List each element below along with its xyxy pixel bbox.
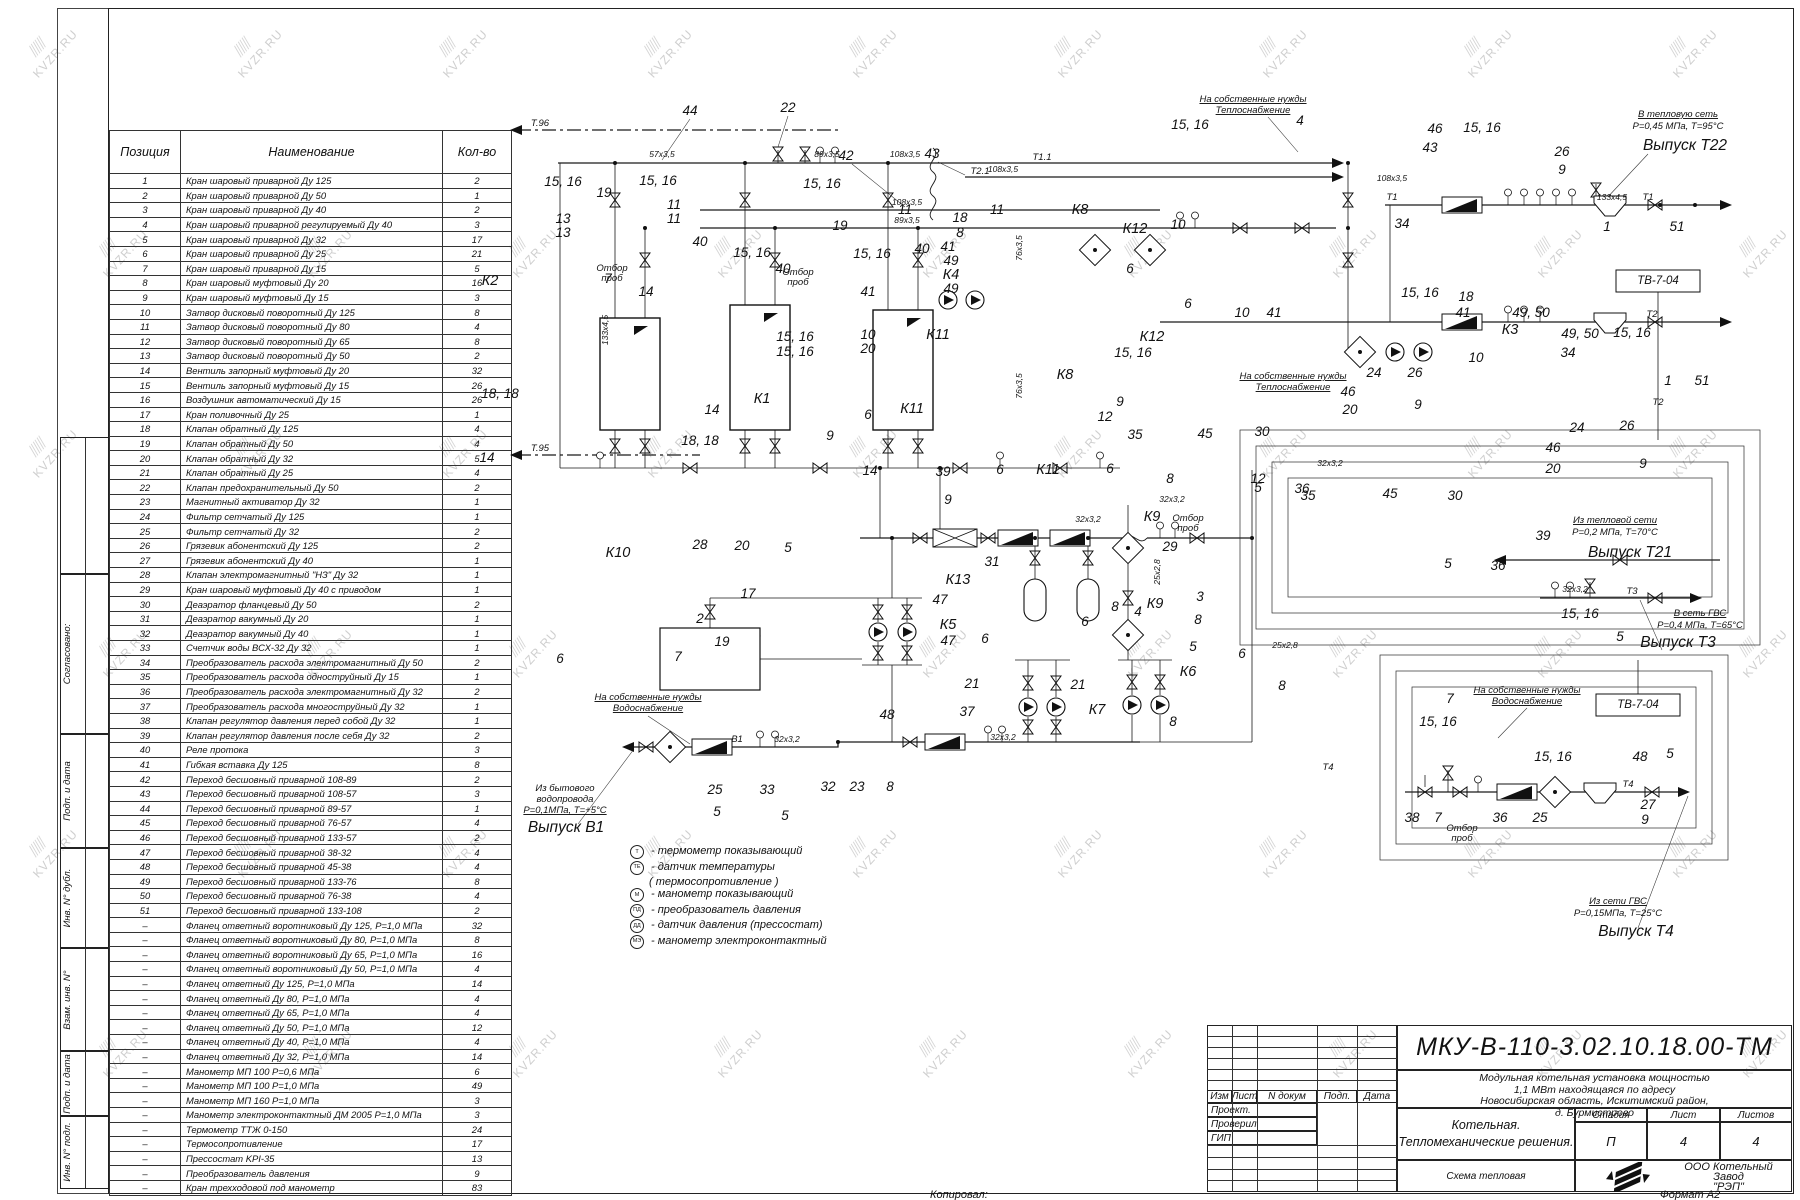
- sheet-value: 4: [1647, 1122, 1720, 1160]
- diagram-label: 6: [996, 462, 1004, 477]
- doc-number: МКУ-В-110-3.02.10.18.00-ТМ: [1397, 1025, 1792, 1070]
- diagram-label: К1: [754, 391, 771, 407]
- diagram-label: В1: [731, 734, 743, 745]
- diagram-label: 14: [704, 402, 719, 417]
- diagram-label: 15, 16: [733, 245, 771, 260]
- diagram-label: Теплоснабжение: [1256, 382, 1331, 393]
- stage-value: П: [1575, 1122, 1647, 1160]
- diagram-label: 15, 16: [639, 173, 677, 188]
- diagram-label: 2: [695, 611, 704, 626]
- diagram-label: 14: [479, 450, 494, 465]
- diagram-label: В тепловую сеть: [1638, 109, 1718, 120]
- piping-schematic: 4422424315, 161915, 16131311114071415, 1…: [0, 0, 1800, 1200]
- sheets-value: 4: [1720, 1122, 1792, 1160]
- diagram-label: 32х3,2: [774, 734, 800, 744]
- drawing-sheet: ⫽⫽⫽KVZR.RU⫽⫽⫽KVZR.RU⫽⫽⫽KVZR.RU⫽⫽⫽KVZR.RU…: [0, 0, 1800, 1200]
- diagram-label: 14: [862, 463, 877, 478]
- diagram-label: 9: [1558, 162, 1566, 177]
- diagram-label: 36: [1492, 810, 1508, 825]
- diagram-label: Выпуск Т22: [1643, 137, 1727, 154]
- diagram-label: 15, 16: [1419, 714, 1457, 729]
- diagram-label: 25х2,8: [1152, 559, 1162, 586]
- diagram-label: 24: [1365, 365, 1381, 380]
- rev-grid-line: [1257, 1025, 1258, 1192]
- diagram-label: 49: [943, 253, 959, 268]
- diagram-label: Водоснабжение: [1492, 696, 1562, 707]
- diagram-label: 18: [952, 210, 968, 225]
- diagram-label: К3: [1502, 322, 1519, 338]
- diagram-label: 11: [990, 202, 1004, 217]
- rev-grid-line: [1232, 1025, 1233, 1192]
- diagram-label: К6: [1180, 664, 1198, 680]
- object-line: Тепломеханические решения.: [1398, 1134, 1574, 1151]
- diagram-label: 13: [555, 225, 571, 240]
- diagram-label: 15, 16: [803, 176, 841, 191]
- diagram-label: 26: [1553, 144, 1570, 159]
- rev-col-izm: Изм: [1207, 1090, 1232, 1103]
- rev-grid-line: [1207, 1145, 1397, 1146]
- diagram-label: 1: [1603, 219, 1611, 234]
- diagram-label: 20: [1544, 461, 1561, 476]
- diagram-label: проб: [787, 277, 809, 288]
- diagram-label: 49, 50: [1561, 326, 1599, 341]
- diagram-label: Т3: [1626, 586, 1638, 597]
- diagram-label: 6: [1238, 646, 1246, 661]
- diagram-label: 108х3,5: [890, 149, 921, 159]
- diagram-label: На собственные нужды: [1473, 685, 1580, 696]
- diagram-label: 8: [886, 779, 894, 794]
- object-line: Котельная.: [1398, 1117, 1574, 1134]
- diagram-label: 76х3,5: [1014, 373, 1024, 399]
- diagram-label: 6: [1126, 261, 1134, 276]
- description-line: Новосибирская область, Искитимский район…: [1398, 1096, 1791, 1108]
- diagram-label: 41: [1455, 305, 1470, 320]
- diagram-label: 9: [1116, 394, 1124, 409]
- diagram-label: В сеть ГВС: [1674, 608, 1727, 619]
- diagram-label: 23: [848, 779, 865, 794]
- diagram-label: 5: [1444, 556, 1452, 571]
- diagram-label: 5: [1666, 746, 1674, 761]
- diagram-label: ТВ-7-04: [1617, 699, 1659, 711]
- diagram-label: 5: [713, 804, 721, 819]
- diagram-label: К9: [1144, 509, 1161, 525]
- diagram-label: 29: [1161, 539, 1178, 554]
- diagram-label: 89х3,5: [814, 149, 840, 159]
- diagram-label: 4: [1134, 604, 1142, 619]
- diagram-label: 30: [1447, 488, 1463, 503]
- diagram-label: 41: [940, 239, 955, 254]
- diagram-label: 19: [714, 634, 730, 649]
- diagram-label: 11: [667, 197, 681, 212]
- stage-header: Стадия: [1575, 1108, 1647, 1122]
- diagram-label: К10: [606, 545, 631, 561]
- diagram-label: 33: [759, 782, 775, 797]
- diagram-label: К9: [1147, 596, 1164, 612]
- diagram-label: 6: [864, 407, 872, 422]
- diagram-label: 45: [1197, 426, 1213, 441]
- diagram-label: 108х3,5: [988, 164, 1019, 174]
- diagram-label: Теплоснабжение: [1216, 105, 1291, 116]
- diagram-label: 10: [1468, 350, 1484, 365]
- description-line: Модульная котельная установка мощностью: [1398, 1073, 1791, 1085]
- diagram-label: К11: [1036, 462, 1060, 478]
- diagram-label: 8: [1194, 612, 1202, 627]
- rev-grid-line: [1207, 1180, 1397, 1181]
- role-row: Проект.: [1207, 1103, 1317, 1117]
- diagram-label: 9: [944, 492, 952, 507]
- diagram-label: 30: [1254, 424, 1270, 439]
- diagram-label: 48: [1632, 749, 1648, 764]
- diagram-label: 32х3,2: [1562, 584, 1588, 594]
- diagram-label: 19: [832, 218, 848, 233]
- diagram-label: 47: [932, 592, 948, 607]
- diagram-label: 15, 16: [1561, 606, 1599, 621]
- diagram-label: 32х3,2: [1317, 458, 1343, 468]
- role-row: ГИП: [1207, 1131, 1317, 1145]
- diagram-label: 9: [1641, 812, 1649, 827]
- diagram-label: 10: [860, 327, 876, 342]
- rev-grid-line: [1207, 1169, 1397, 1170]
- boiler-icons: [600, 305, 933, 430]
- diagram-label: 17: [740, 586, 756, 601]
- object-name: Котельная. Тепломеханические решения.: [1397, 1108, 1575, 1160]
- diagram-label: 36: [1490, 558, 1506, 573]
- diagram-label: Т4: [1322, 762, 1333, 773]
- diagram-label: Т1: [1386, 192, 1397, 203]
- diagram-label: 26: [1406, 365, 1423, 380]
- diagram-label: 15, 16: [1613, 325, 1651, 340]
- diagram-label: 8: [1278, 678, 1286, 693]
- diagram-label: 46: [1545, 440, 1561, 455]
- diagram-label: 1: [1664, 373, 1672, 388]
- diagram-label: 57х3,5: [649, 149, 675, 159]
- diagram-label: 32х3,2: [990, 732, 1016, 742]
- copied-by-label: Копировал:: [930, 1189, 988, 1200]
- org-cell: ООО Котельный Завод "РЭП": [1575, 1160, 1792, 1192]
- diagram-label: 15, 16: [776, 329, 814, 344]
- diagram-label: 5: [784, 540, 792, 555]
- diagram-label: На собственные нужды: [1239, 371, 1346, 382]
- rev-grid-line: [1207, 1047, 1397, 1048]
- diagram-label: К2: [482, 273, 499, 289]
- diagram-label: 108х3,5: [892, 197, 923, 207]
- diagram-label: 35: [1300, 488, 1316, 503]
- rev-col-list: Лист: [1232, 1090, 1257, 1103]
- rev-col-date: Дата: [1357, 1090, 1397, 1103]
- diagram-label: 32х3,2: [1159, 494, 1185, 504]
- rev-grid-line: [1207, 1080, 1397, 1081]
- diagram-label: 25: [706, 782, 723, 797]
- diagram-label: 89х3,5: [894, 215, 920, 225]
- diagram-label: 9: [826, 428, 834, 443]
- rep-logo: [1606, 1162, 1650, 1192]
- diagram-label: 32: [820, 779, 836, 794]
- diagram-label: 35: [1127, 427, 1143, 442]
- diagram-label: 15, 16: [853, 246, 891, 261]
- rev-grid-line: [1207, 1036, 1397, 1037]
- diagram-label: 28: [691, 537, 708, 552]
- diagram-label: К12: [1140, 329, 1165, 345]
- diagram-label: 32х3,2: [1075, 514, 1101, 524]
- diagram-label: Р=0,1МПа, Т=+5°С: [523, 805, 606, 816]
- diagram-label: 51: [1669, 219, 1684, 234]
- sheet-header: Лист: [1647, 1108, 1720, 1122]
- diagram-label: Т4: [1622, 779, 1633, 790]
- diagram-label: 48: [879, 707, 895, 722]
- diagram-label: 15, 16: [1114, 345, 1152, 360]
- diagram-label: На собственные нужды: [594, 692, 701, 703]
- diagram-label: Р=0,15МПа, Т=25°С: [1574, 908, 1662, 919]
- diagram-label: 7: [1434, 810, 1442, 825]
- diagram-label: 15, 16: [776, 344, 814, 359]
- diagram-label: К11: [926, 327, 950, 343]
- diagram-label: 43: [1422, 140, 1438, 155]
- diagram-label: 19: [596, 185, 612, 200]
- format-label: Формат А2: [1660, 1189, 1720, 1200]
- diagram-label: проб: [1177, 523, 1199, 534]
- diagram-label: 25х2,8: [1271, 640, 1298, 650]
- diagram-label: 8: [1111, 599, 1119, 614]
- diagram-label: 6: [1081, 614, 1089, 629]
- diagram-label: Р=0,4 МПа, Т=65°С: [1657, 620, 1743, 631]
- diagram-label: проб: [1451, 833, 1473, 844]
- diagram-label: На собственные нужды: [1199, 94, 1306, 105]
- diagram-label: 43: [924, 146, 940, 161]
- diagram-label: Т2: [1652, 397, 1664, 408]
- diagram-label: водопровода: [537, 794, 594, 805]
- diagram-label: 15, 16: [1534, 749, 1572, 764]
- diagram-label: Водоснабжение: [613, 703, 683, 714]
- diagram-label: 18: [1458, 289, 1474, 304]
- diagram-label: К12: [1123, 221, 1148, 237]
- diagram-label: 49: [943, 281, 959, 296]
- sheets-header: Листов: [1720, 1108, 1792, 1122]
- diagram-label: 108х3,5: [1377, 173, 1408, 183]
- diagram-label: Из сети ГВС: [1589, 896, 1647, 907]
- diagram-label: Т.96: [531, 118, 550, 129]
- diagram-label: 4: [1296, 113, 1304, 128]
- diagram-label: 11: [667, 211, 681, 226]
- diagram-label: Выпуск Т21: [1588, 544, 1672, 561]
- rev-grid-line: [1357, 1025, 1358, 1192]
- diagram-label: 8: [1169, 714, 1177, 729]
- diagram-label: 21: [1069, 677, 1085, 692]
- diagram-label: проб: [601, 273, 623, 284]
- diagram-label: 31: [984, 554, 999, 569]
- diagram-label: 6: [981, 631, 989, 646]
- leader-lines: [578, 116, 1688, 928]
- diagram-label: Т1: [1642, 192, 1653, 203]
- diagram-label: 34: [1560, 345, 1575, 360]
- diagram-label: 10: [1234, 305, 1250, 320]
- diagram-labels: 4422424315, 161915, 16131311114071415, 1…: [479, 94, 1742, 940]
- rev-grid-line: [1317, 1025, 1318, 1192]
- diagram-label: 9: [1639, 456, 1647, 471]
- diagram-label: 6: [556, 651, 564, 666]
- diagram-label: 15, 16: [544, 174, 582, 189]
- diagram-label: Т1.1: [1032, 152, 1051, 163]
- diagram-label: 15, 16: [1171, 117, 1209, 132]
- diagram-label: 12: [1097, 409, 1113, 424]
- diagram-label: 18, 18: [481, 386, 519, 401]
- diagram-label: 39: [935, 464, 951, 479]
- diagram-label: 15, 16: [1401, 285, 1439, 300]
- diagram-label: 20: [1341, 402, 1358, 417]
- diagram-label: 13: [555, 211, 571, 226]
- diagram-label: Р=0,45 МПа, Т=95°С: [1633, 121, 1724, 132]
- diagram-label: 25: [1531, 810, 1548, 825]
- diagram-label: 45: [1382, 486, 1398, 501]
- diagram-label: 46: [1340, 384, 1356, 399]
- diagram-label: 3: [1196, 589, 1204, 604]
- diagram-label: К8: [1057, 367, 1074, 383]
- diagram-label: 51: [1694, 373, 1709, 388]
- diagram-label: 42: [838, 148, 854, 163]
- diagram-label: Т2: [1646, 309, 1658, 320]
- diagram-label: Выпуск В1: [528, 819, 604, 836]
- diagram-label: 7: [1446, 691, 1454, 706]
- diagram-label: 41: [860, 284, 875, 299]
- diagram-label: 5: [1189, 639, 1197, 654]
- diagram-label: ТВ-7-04: [1637, 275, 1679, 287]
- diagram-label: 34: [1394, 216, 1409, 231]
- diagram-label: 76х3,5: [1014, 235, 1024, 261]
- diagram-label: 44: [682, 103, 697, 118]
- diagram-label: 41: [1266, 305, 1281, 320]
- rev-grid-line: [1207, 1157, 1397, 1158]
- diagram-label: 27: [1639, 797, 1656, 812]
- diagram-label: 133х4,5: [600, 315, 610, 346]
- diagram-label: 6: [1106, 461, 1114, 476]
- diagram-label: 6: [1184, 296, 1192, 311]
- diagram-label: 12: [1250, 471, 1266, 486]
- diagram-label: 18, 18: [681, 433, 719, 448]
- diagram-label: Из бытового: [535, 783, 594, 794]
- diagram-label: 37: [959, 704, 975, 719]
- diagram-label: Из тепловой сети: [1573, 515, 1658, 526]
- rev-grid-line: [1207, 1069, 1397, 1070]
- diagram-label: К7: [1089, 702, 1107, 718]
- diagram-label: 40: [692, 234, 708, 249]
- diagram-label: 21: [963, 676, 979, 691]
- diagram-label: 39: [1535, 528, 1551, 543]
- diagram-label: 5: [1616, 629, 1624, 644]
- role-row: Проверил: [1207, 1117, 1317, 1131]
- diagram-label: 10: [1170, 217, 1186, 232]
- diagram-label: 9: [1414, 397, 1422, 412]
- diagram-label: Выпуск Т3: [1640, 634, 1716, 651]
- diagram-label: 49, 50: [1512, 305, 1550, 320]
- diagram-label: 15, 16: [1463, 120, 1501, 135]
- project-description: Модульная котельная установка мощностью …: [1397, 1070, 1792, 1108]
- diagram-label: 47: [940, 633, 956, 648]
- diagram-label: 5: [781, 808, 789, 823]
- diagram-label: 38: [1404, 810, 1420, 825]
- diagram-label: 20: [859, 341, 876, 356]
- diagram-label: 22: [779, 100, 796, 115]
- drawing-name: Схема тепловая: [1397, 1160, 1575, 1192]
- diagram-label: Т.95: [531, 443, 550, 454]
- diagram-label: 8: [1166, 471, 1174, 486]
- rev-grid-line: [1207, 1058, 1397, 1059]
- rev-col-sign: Подп.: [1317, 1090, 1357, 1103]
- diagram-label: К11: [900, 401, 924, 417]
- diagram-label: К13: [946, 572, 971, 588]
- diagram-label: 8: [956, 225, 964, 240]
- diagram-label: 133х4,5: [1597, 192, 1628, 202]
- diagram-label: Т2.1: [970, 166, 989, 177]
- diagram-label: 24: [1568, 420, 1584, 435]
- diagram-label: 40: [914, 241, 930, 256]
- diagram-label: 46: [1427, 121, 1443, 136]
- diagram-label: К8: [1072, 202, 1089, 218]
- diagram-label: 14: [638, 284, 653, 299]
- rev-col-doc: N докум: [1257, 1090, 1317, 1103]
- diagram-label: 26: [1618, 418, 1635, 433]
- diagram-label: К5: [940, 617, 958, 633]
- diagram-label: Выпуск Т4: [1598, 923, 1674, 940]
- diagram-label: 20: [733, 538, 750, 553]
- diagram-label: Р=0,2 МПа, Т=70°С: [1572, 527, 1658, 538]
- meter-icon: [933, 529, 977, 547]
- diagram-label: 7: [674, 649, 682, 664]
